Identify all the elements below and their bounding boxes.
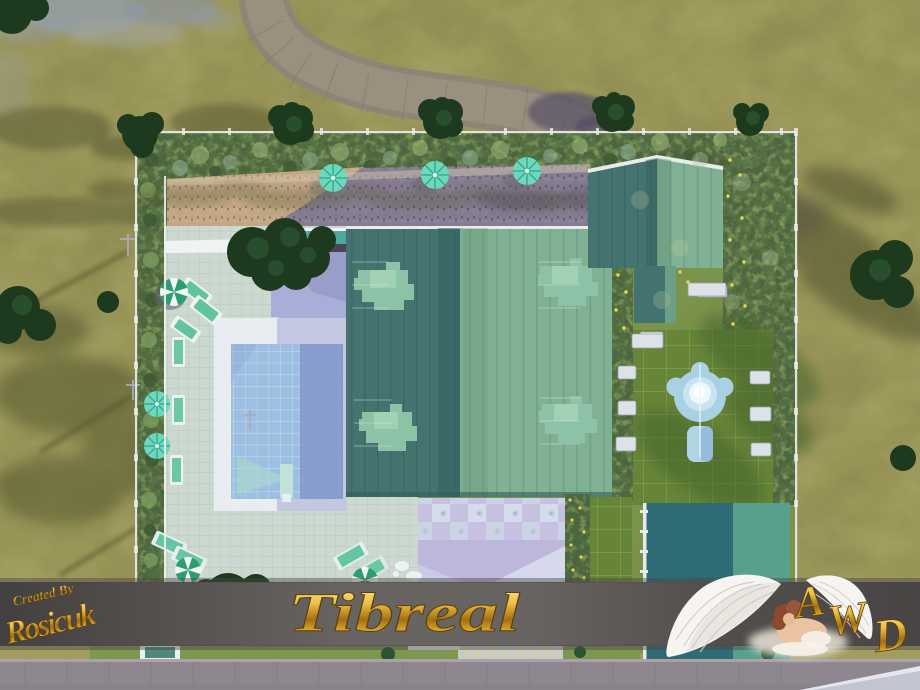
svg-text:Tibreal: Tibreal bbox=[288, 582, 521, 643]
svg-text:D: D bbox=[869, 607, 910, 662]
